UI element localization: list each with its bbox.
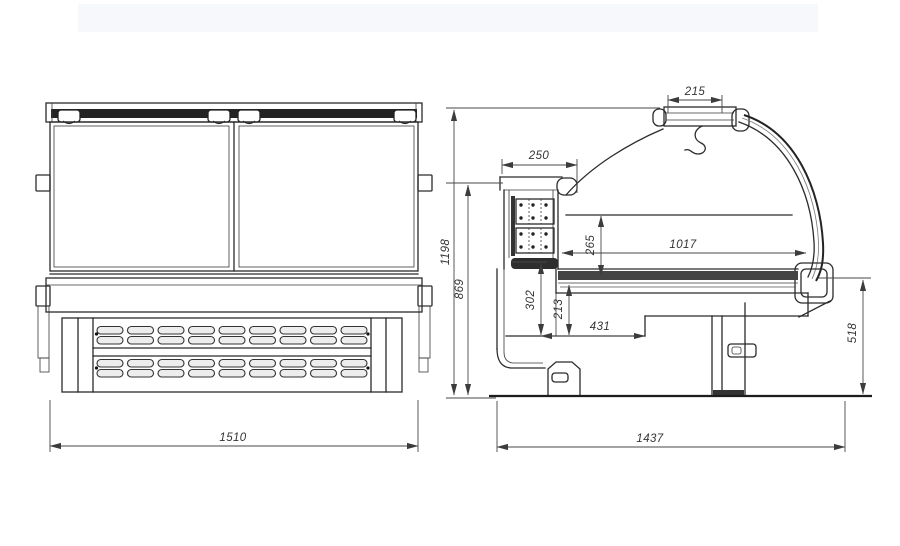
side-canopy (653, 107, 749, 154)
front-canopy-rail (46, 103, 422, 124)
canopy-lamp-bracket (685, 126, 705, 154)
dim-overall-depth-label: 1437 (636, 433, 663, 445)
dim-lower-section-height-label: 302 (525, 290, 537, 311)
dim-base-inner-height-label: 213 (553, 299, 565, 321)
side-rear-duct (500, 177, 577, 269)
dim-worktop-height-label: 869 (454, 279, 466, 300)
side-view-drawing: 215 250 1198 869 265 1017 302 213 431 51… (440, 86, 872, 452)
front-dimension-overall-width: 1510 (50, 400, 418, 452)
back-panel-curve (566, 129, 663, 195)
drawing-page: 1510 (0, 0, 900, 546)
base-foot (548, 362, 580, 396)
dim-rear-duct-width-label: 250 (528, 150, 550, 162)
dim-base-shelf-depth-label: 431 (590, 321, 610, 333)
rear-ledge (511, 258, 558, 269)
grille-slots (97, 327, 367, 378)
front-view-drawing: 1510 (36, 103, 432, 452)
drawing-svg: 1510 (0, 0, 900, 546)
front-glass-doors (50, 122, 418, 274)
dim-front-panel-height-label: 518 (847, 323, 859, 344)
front-bumper-band (46, 278, 422, 312)
dim-overall-height-label: 1198 (440, 239, 452, 266)
evaporator-grid (516, 199, 554, 253)
scan-artifact-band (78, 4, 818, 32)
duct-dark-strip (511, 196, 515, 256)
front-ventilation-grille (62, 318, 402, 392)
dim-shelf-depth-label: 1017 (669, 239, 696, 251)
dim-overall-width-label: 1510 (219, 432, 246, 444)
side-base-structure (489, 269, 872, 396)
deck-dark-band (558, 271, 798, 280)
front-canopy-dark-band (51, 109, 417, 118)
dim-opening-height-label: 265 (585, 235, 597, 257)
dim-canopy-width-label: 215 (684, 86, 706, 98)
